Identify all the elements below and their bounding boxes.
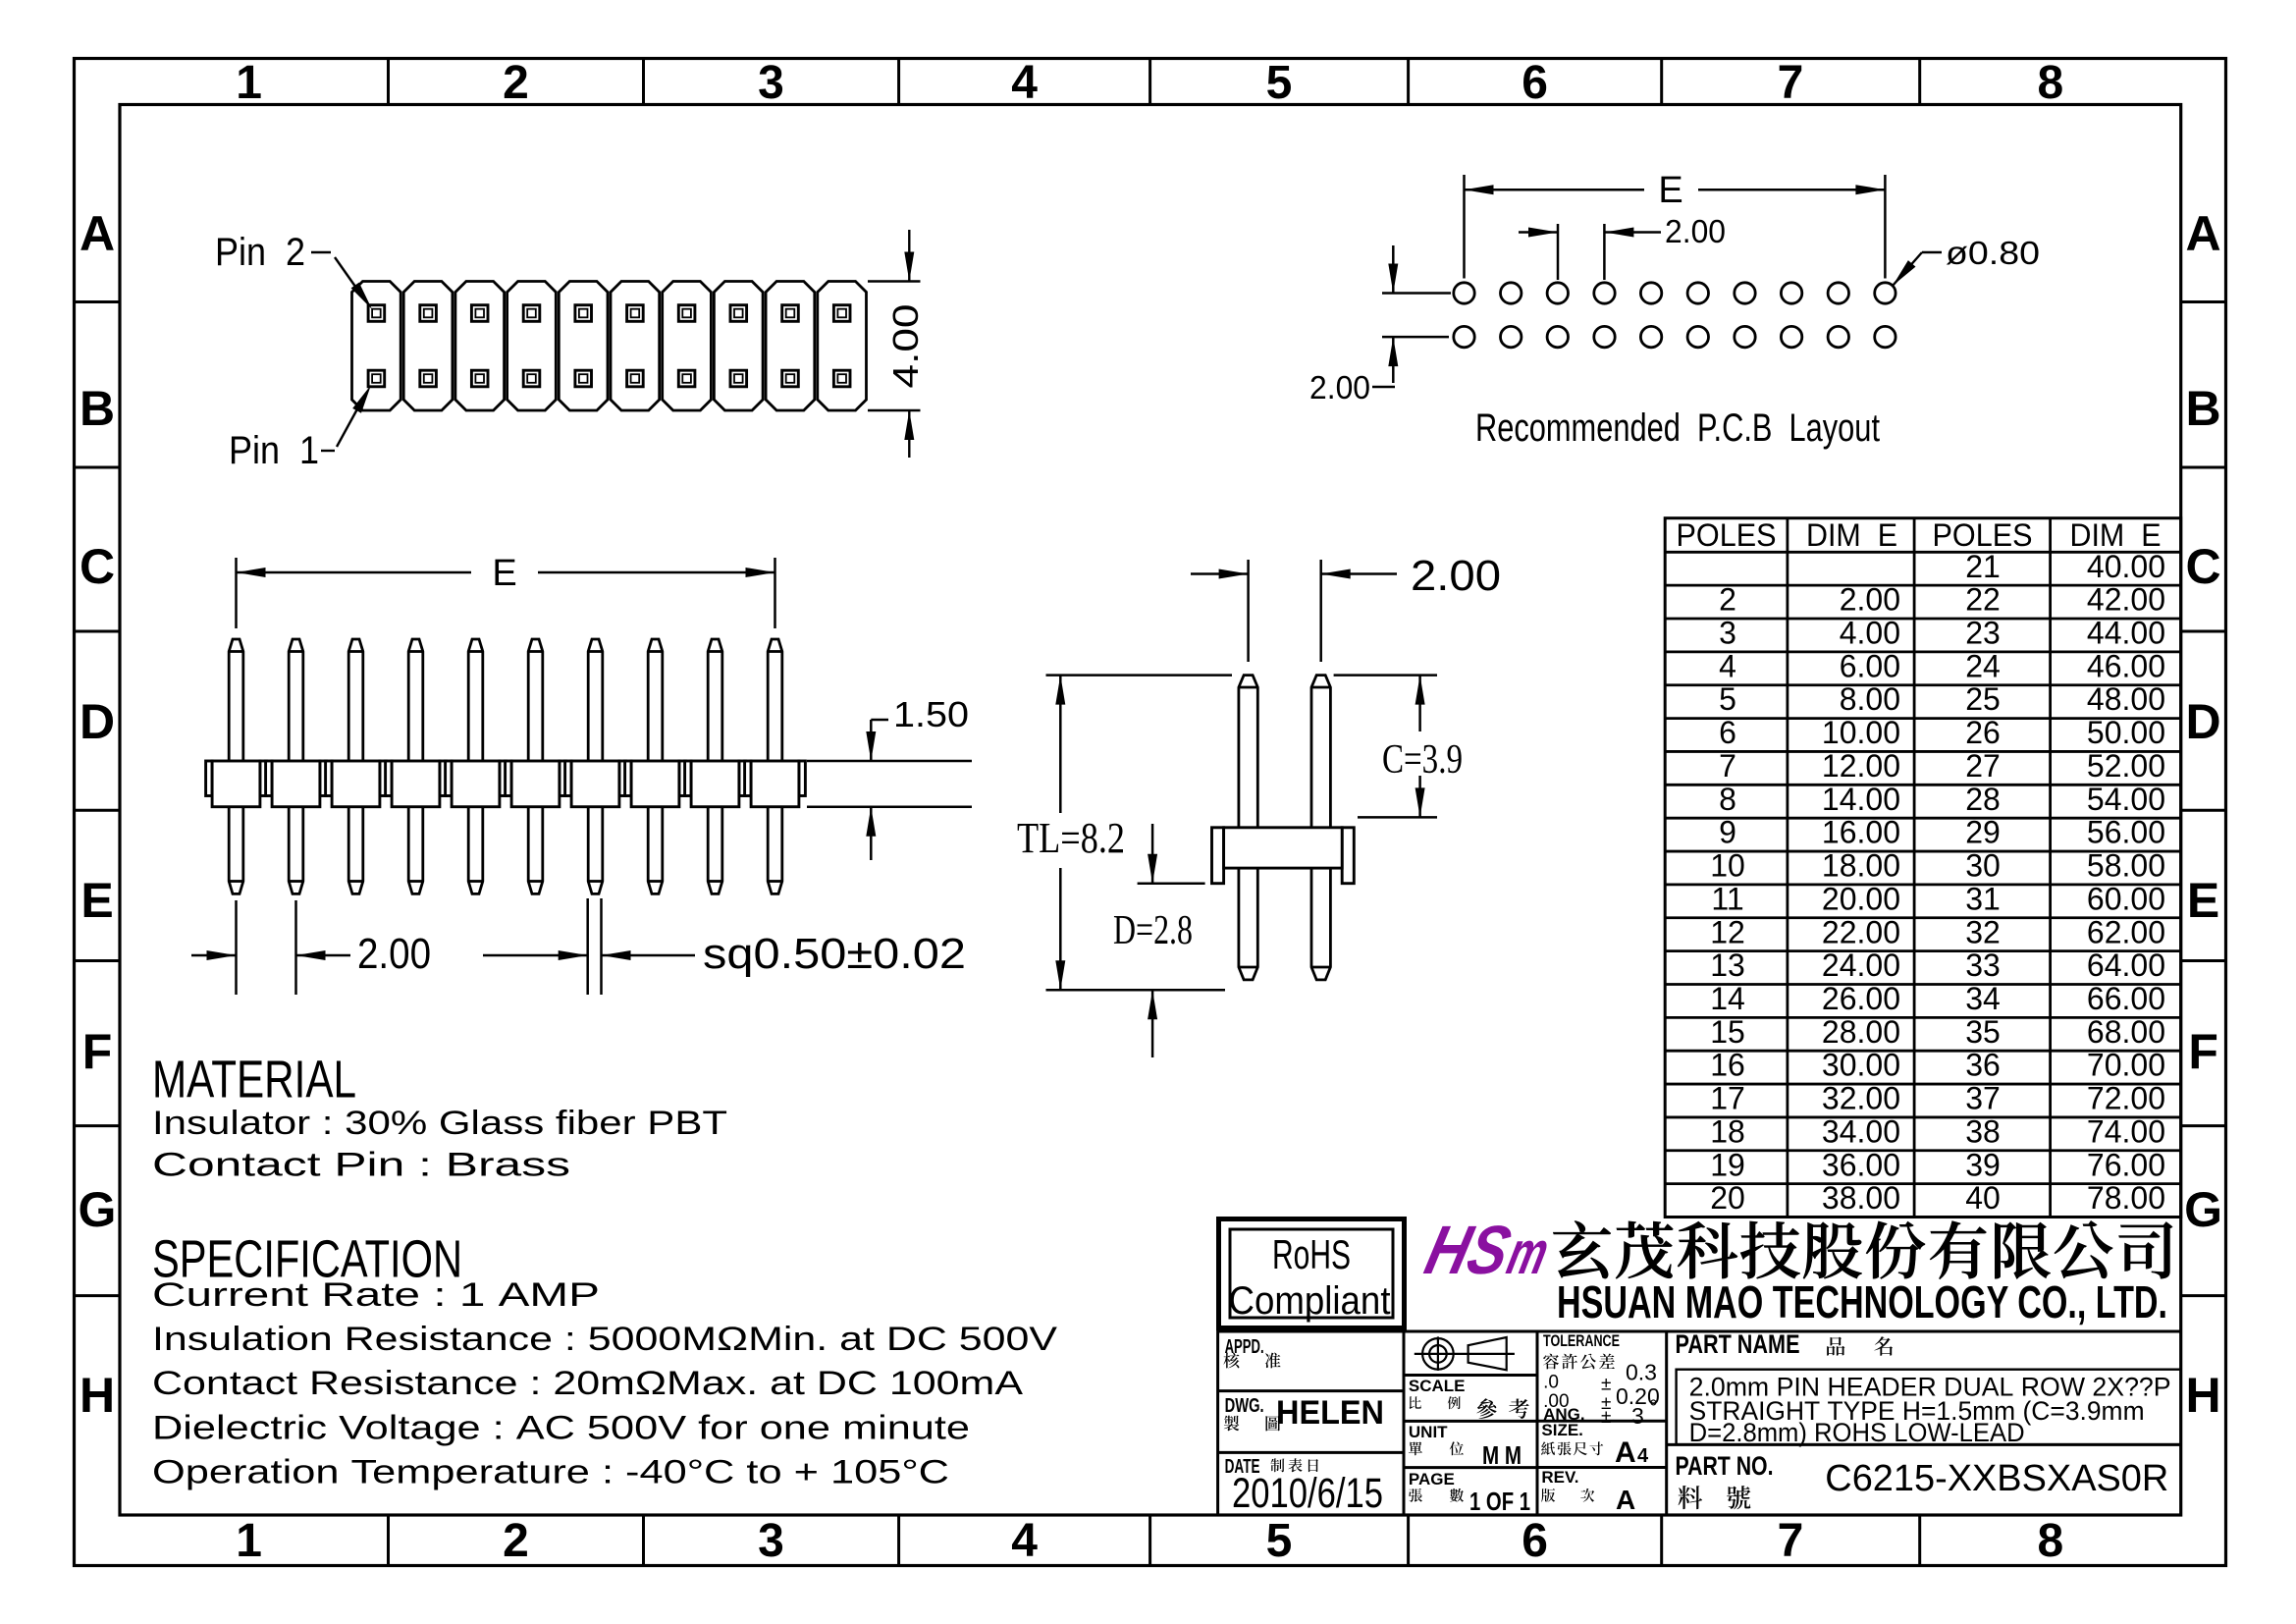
svg-text:9: 9 bbox=[1719, 815, 1736, 850]
svg-text:11: 11 bbox=[1711, 881, 1743, 916]
svg-text:.0: .0 bbox=[1543, 1373, 1559, 1393]
svg-text:58.00: 58.00 bbox=[2087, 848, 2165, 884]
svg-text:Operation Temperature : -40°C: Operation Temperature : -40°C to + 105°C bbox=[152, 1453, 949, 1490]
svg-text:B: B bbox=[80, 381, 115, 436]
svg-text:A: A bbox=[1615, 1436, 1636, 1469]
svg-text:SIZE.: SIZE. bbox=[1541, 1421, 1583, 1439]
svg-text:46.00: 46.00 bbox=[2087, 648, 2165, 683]
svg-text:POLES: POLES bbox=[1933, 517, 2033, 553]
svg-text:UNIT: UNIT bbox=[1409, 1423, 1448, 1441]
svg-text:Recommended P.C.B Layout: Recommended P.C.B Layout bbox=[1475, 406, 1880, 450]
svg-text:76.00: 76.00 bbox=[2087, 1147, 2165, 1182]
svg-text:8: 8 bbox=[2037, 1515, 2063, 1567]
svg-text:3: 3 bbox=[758, 57, 784, 109]
svg-text:Pin 1: Pin 1 bbox=[229, 429, 319, 472]
svg-text:HELEN: HELEN bbox=[1276, 1394, 1384, 1432]
svg-text:5: 5 bbox=[1266, 1515, 1293, 1567]
svg-text:Insulator : 30% Glass fiber PB: Insulator : 30% Glass fiber PBT bbox=[152, 1105, 727, 1142]
svg-text:12: 12 bbox=[1710, 914, 1745, 949]
svg-text:4: 4 bbox=[1011, 1515, 1038, 1567]
svg-text:19: 19 bbox=[1710, 1147, 1745, 1182]
svg-text:5: 5 bbox=[1719, 681, 1736, 717]
svg-text:D: D bbox=[80, 694, 115, 749]
svg-text:48.00: 48.00 bbox=[2087, 681, 2165, 717]
svg-text:22: 22 bbox=[1965, 582, 2001, 618]
svg-text:8.00: 8.00 bbox=[1840, 681, 1900, 717]
svg-text:HSUAN MAO TECHNOLOGY CO., LTD.: HSUAN MAO TECHNOLOGY CO., LTD. bbox=[1557, 1276, 2167, 1327]
svg-text:16: 16 bbox=[1710, 1048, 1745, 1083]
svg-text:4: 4 bbox=[1719, 648, 1736, 683]
svg-text:30: 30 bbox=[1965, 848, 2001, 884]
svg-text:2.00: 2.00 bbox=[1840, 582, 1900, 618]
svg-text:30.00: 30.00 bbox=[1822, 1048, 1900, 1083]
svg-text:PART NO.: PART NO. bbox=[1676, 1451, 1774, 1481]
svg-text:C6215-XXBSXAS0R: C6215-XXBSXAS0R bbox=[1825, 1458, 2168, 1499]
svg-text:32: 32 bbox=[1965, 914, 2001, 949]
svg-text:±: ± bbox=[1601, 1407, 1611, 1428]
svg-text:18: 18 bbox=[1710, 1113, 1745, 1149]
svg-text:3: 3 bbox=[1631, 1403, 1644, 1429]
svg-text:74.00: 74.00 bbox=[2087, 1113, 2165, 1149]
svg-text:G: G bbox=[2184, 1182, 2222, 1237]
svg-text:56.00: 56.00 bbox=[2087, 815, 2165, 850]
svg-text:54.00: 54.00 bbox=[2087, 782, 2165, 817]
svg-text:Current Rate : 1 AMP: Current Rate : 1 AMP bbox=[152, 1276, 600, 1314]
svg-text:20.00: 20.00 bbox=[1822, 881, 1900, 916]
svg-text:F: F bbox=[2188, 1024, 2218, 1079]
svg-text:±: ± bbox=[1601, 1375, 1611, 1395]
svg-text:25: 25 bbox=[1965, 681, 2001, 717]
svg-text:Contact Pin : Brass: Contact Pin : Brass bbox=[152, 1147, 570, 1184]
svg-text:A: A bbox=[1616, 1485, 1635, 1515]
svg-text:4: 4 bbox=[1637, 1445, 1649, 1467]
svg-text:23: 23 bbox=[1965, 616, 2001, 651]
svg-text:E: E bbox=[2187, 873, 2219, 928]
svg-text:POLES: POLES bbox=[1677, 517, 1777, 553]
svg-text:34: 34 bbox=[1965, 981, 2001, 1016]
svg-text:26.00: 26.00 bbox=[1822, 981, 1900, 1016]
svg-text:33: 33 bbox=[1965, 947, 2001, 983]
svg-text:21: 21 bbox=[1965, 549, 2001, 584]
svg-text:64.00: 64.00 bbox=[2087, 947, 2165, 983]
svg-text:E: E bbox=[80, 873, 113, 928]
svg-text:72.00: 72.00 bbox=[2087, 1081, 2165, 1116]
svg-text:TOLERANCE: TOLERANCE bbox=[1543, 1331, 1620, 1350]
svg-text:5: 5 bbox=[1266, 57, 1293, 109]
svg-text:D=2.8: D=2.8 bbox=[1113, 908, 1193, 953]
svg-text:A: A bbox=[2186, 206, 2221, 261]
svg-text:H: H bbox=[80, 1368, 115, 1423]
svg-text:13: 13 bbox=[1710, 947, 1745, 983]
svg-text:DIM E: DIM E bbox=[1806, 517, 1897, 553]
svg-text:sq0.50±0.02: sq0.50±0.02 bbox=[703, 930, 966, 978]
svg-text:62.00: 62.00 bbox=[2087, 914, 2165, 949]
svg-text:70.00: 70.00 bbox=[2087, 1048, 2165, 1083]
svg-text:10.00: 10.00 bbox=[1822, 715, 1900, 750]
svg-text:PART NAME: PART NAME bbox=[1676, 1329, 1800, 1359]
svg-text:3: 3 bbox=[758, 1515, 784, 1567]
svg-text:36: 36 bbox=[1965, 1048, 2001, 1083]
svg-text:SCALE: SCALE bbox=[1409, 1377, 1466, 1395]
svg-text:RoHS: RoHS bbox=[1272, 1231, 1351, 1277]
svg-text:F: F bbox=[82, 1024, 113, 1079]
svg-text:24.00: 24.00 bbox=[1822, 947, 1900, 983]
svg-text:34.00: 34.00 bbox=[1822, 1113, 1900, 1149]
svg-text:14.00: 14.00 bbox=[1822, 782, 1900, 817]
svg-text:2.00: 2.00 bbox=[1665, 213, 1726, 249]
svg-text:B: B bbox=[2186, 381, 2221, 436]
svg-text:8: 8 bbox=[2037, 57, 2063, 109]
svg-text:28: 28 bbox=[1965, 782, 2001, 817]
svg-text:3: 3 bbox=[1719, 616, 1736, 651]
svg-text:A: A bbox=[80, 206, 115, 261]
svg-text:4.00: 4.00 bbox=[1840, 616, 1900, 651]
svg-text:APPD.: APPD. bbox=[1225, 1336, 1264, 1358]
svg-text:52.00: 52.00 bbox=[2087, 748, 2165, 784]
svg-text:18.00: 18.00 bbox=[1822, 848, 1900, 884]
svg-text:PAGE: PAGE bbox=[1409, 1470, 1455, 1489]
svg-text:7: 7 bbox=[1719, 748, 1736, 784]
svg-text:17: 17 bbox=[1710, 1081, 1745, 1116]
svg-text:1: 1 bbox=[236, 57, 262, 109]
svg-text:10: 10 bbox=[1710, 848, 1745, 884]
svg-text:39: 39 bbox=[1965, 1147, 2001, 1182]
svg-text:2010/6/15: 2010/6/15 bbox=[1232, 1470, 1383, 1517]
svg-text:DWG.: DWG. bbox=[1225, 1395, 1264, 1417]
svg-text:Insulation Resistance : 5000MΩ: Insulation Resistance : 5000MΩMin. at DC… bbox=[152, 1321, 1057, 1358]
svg-text:E: E bbox=[1658, 170, 1682, 211]
svg-text:26: 26 bbox=[1965, 715, 2001, 750]
svg-text:66.00: 66.00 bbox=[2087, 981, 2165, 1016]
svg-text:1.50: 1.50 bbox=[893, 694, 969, 734]
svg-text:M M: M M bbox=[1482, 1440, 1522, 1470]
svg-text:40: 40 bbox=[1965, 1180, 2001, 1216]
svg-text:42.00: 42.00 bbox=[2087, 582, 2165, 618]
svg-text:Dielectric Voltage : AC 500V f: Dielectric Voltage : AC 500V for one min… bbox=[152, 1409, 970, 1446]
svg-text:6.00: 6.00 bbox=[1840, 648, 1900, 683]
svg-text:Contact Resistance : 20mΩMax.: Contact Resistance : 20mΩMax. at DC 100m… bbox=[152, 1365, 1023, 1402]
svg-text:60.00: 60.00 bbox=[2087, 881, 2165, 916]
svg-text:REV.: REV. bbox=[1541, 1468, 1578, 1487]
svg-text:29: 29 bbox=[1965, 815, 2001, 850]
svg-text:4: 4 bbox=[1011, 57, 1038, 109]
svg-text:36.00: 36.00 bbox=[1822, 1147, 1900, 1182]
svg-text:40.00: 40.00 bbox=[2087, 549, 2165, 584]
svg-text:H: H bbox=[2186, 1368, 2221, 1423]
svg-text:28.00: 28.00 bbox=[1822, 1014, 1900, 1050]
svg-text:2.00: 2.00 bbox=[1309, 369, 1370, 406]
svg-text:1: 1 bbox=[236, 1515, 262, 1567]
svg-text:DIM E: DIM E bbox=[2070, 517, 2162, 553]
svg-text:°: ° bbox=[1649, 1395, 1658, 1420]
svg-text:6: 6 bbox=[1522, 57, 1548, 109]
svg-text:C: C bbox=[80, 539, 115, 594]
svg-text:15: 15 bbox=[1710, 1014, 1745, 1050]
svg-text:44.00: 44.00 bbox=[2087, 616, 2165, 651]
svg-text:38.00: 38.00 bbox=[1822, 1180, 1900, 1216]
svg-text:0.3: 0.3 bbox=[1626, 1360, 1657, 1385]
svg-text:8: 8 bbox=[1719, 782, 1736, 817]
svg-text:ø0.80: ø0.80 bbox=[1946, 235, 2040, 271]
svg-text:12.00: 12.00 bbox=[1822, 748, 1900, 784]
svg-text:E: E bbox=[492, 553, 516, 594]
svg-text:G: G bbox=[79, 1182, 117, 1237]
svg-text:6: 6 bbox=[1522, 1515, 1548, 1567]
svg-text:2.00: 2.00 bbox=[1411, 552, 1501, 600]
svg-text:D=2.8mm) ROHS LOW-LEAD: D=2.8mm) ROHS LOW-LEAD bbox=[1689, 1418, 2025, 1447]
svg-text:2: 2 bbox=[1719, 582, 1736, 618]
svg-text:C: C bbox=[2186, 539, 2221, 594]
svg-text:24: 24 bbox=[1965, 648, 2001, 683]
svg-text:31: 31 bbox=[1965, 881, 2001, 916]
svg-text:78.00: 78.00 bbox=[2087, 1180, 2165, 1216]
svg-text:2: 2 bbox=[503, 57, 529, 109]
svg-text:50.00: 50.00 bbox=[2087, 715, 2165, 750]
svg-text:2.00: 2.00 bbox=[357, 930, 431, 978]
svg-text:14: 14 bbox=[1710, 981, 1745, 1016]
svg-text:MATERIAL: MATERIAL bbox=[152, 1051, 356, 1110]
svg-text:D: D bbox=[2186, 694, 2221, 749]
svg-text:32.00: 32.00 bbox=[1822, 1081, 1900, 1116]
svg-text:35: 35 bbox=[1965, 1014, 2001, 1050]
svg-text:37: 37 bbox=[1965, 1081, 2001, 1116]
svg-text:6: 6 bbox=[1719, 715, 1736, 750]
svg-text:22.00: 22.00 bbox=[1822, 914, 1900, 949]
svg-text:2: 2 bbox=[503, 1515, 529, 1567]
svg-text:4.00: 4.00 bbox=[885, 304, 926, 389]
svg-text:7: 7 bbox=[1778, 1515, 1804, 1567]
svg-text:1 OF 1: 1 OF 1 bbox=[1469, 1487, 1530, 1516]
svg-text:Pin 2: Pin 2 bbox=[215, 231, 305, 274]
svg-text:16.00: 16.00 bbox=[1822, 815, 1900, 850]
svg-text:27: 27 bbox=[1965, 748, 2001, 784]
svg-text:TL=8.2: TL=8.2 bbox=[1017, 814, 1125, 862]
svg-text:38: 38 bbox=[1965, 1113, 2001, 1149]
svg-text:C=3.9: C=3.9 bbox=[1382, 737, 1463, 783]
svg-text:68.00: 68.00 bbox=[2087, 1014, 2165, 1050]
svg-text:Compliant: Compliant bbox=[1229, 1279, 1391, 1323]
svg-text:20: 20 bbox=[1710, 1180, 1745, 1216]
svg-text:7: 7 bbox=[1778, 57, 1804, 109]
